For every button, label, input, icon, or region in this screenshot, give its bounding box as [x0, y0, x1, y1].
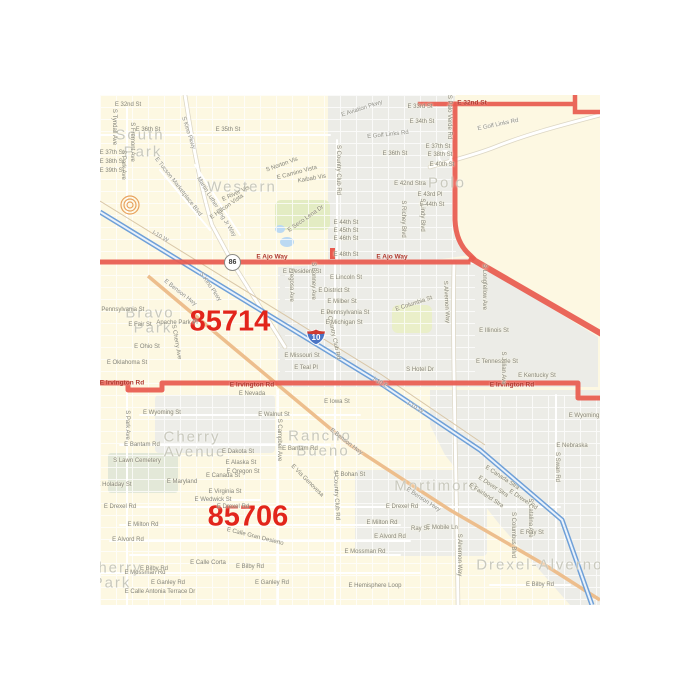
area-label: Cherry: [100, 560, 143, 577]
street-label: E Wedwick St: [195, 497, 232, 503]
street-label: E Walnut St: [258, 412, 289, 418]
street-label: E Milton Rd: [127, 522, 158, 528]
street-label: E Ganley Rd: [255, 580, 289, 586]
street-label: E Kentucky St: [518, 373, 556, 379]
street-label: S Country Club Rd: [325, 310, 341, 360]
street-label: S Alvernon Way: [442, 281, 450, 324]
hwy-label: S Kino Pkwy: [180, 116, 196, 150]
street-label: E Ray St: [520, 530, 544, 536]
street-label: E Tennessee St: [476, 359, 518, 365]
street-label: E Bantam Rd: [124, 442, 160, 448]
hwy-label: E Aviation Pkwy: [341, 100, 383, 119]
street-label: E Seco Lena Dr: [287, 204, 325, 233]
street-label: E 45th St: [334, 228, 359, 234]
street-label: E Mossman Rd: [344, 549, 385, 555]
street-label: S Catalina Ave: [527, 498, 533, 537]
street-label: E Fairland Stra: [468, 483, 505, 510]
street-label: E 39th St: [100, 168, 124, 174]
street-label: S Lawn Cemetery: [113, 458, 161, 464]
street-label: E District St: [318, 288, 349, 294]
zip-code-map[interactable]: 86 10 8571485706SouthParkWesternPoloBrav…: [100, 95, 600, 605]
street-label: E Milton Rd: [366, 520, 397, 526]
street-label: E 36th St: [383, 151, 408, 157]
street-label: Apache Park Pl: [156, 320, 197, 326]
street-label: Fregosa Ave: [288, 268, 294, 302]
area-label: Park: [124, 144, 163, 161]
street-label: E 40th St: [430, 162, 455, 168]
hwy-label: I-10 E: [372, 376, 389, 389]
road-label: E Irvington Rd: [100, 380, 144, 387]
street-label: E Columbia St: [395, 295, 433, 313]
street-label: S Richey Blvd: [400, 200, 406, 237]
street-label: E Oklahoma St: [107, 360, 147, 366]
street-label: S Tyndall Ave: [111, 109, 117, 145]
street-label: E 46th St: [334, 236, 359, 242]
street-label: E Teal Pl: [294, 365, 318, 371]
street-label: E Alvord Rd: [112, 537, 144, 543]
area-label: Bravo: [125, 305, 174, 322]
road-label: E Irvington Rd: [490, 382, 534, 389]
street-label: S Alvernon Way: [456, 534, 462, 576]
street-label: E Illinois St: [479, 328, 509, 334]
street-label: S Park Ave: [120, 150, 126, 180]
street-label: E Ganley Rd: [151, 580, 185, 586]
street-label: S Cherry Ave: [170, 324, 182, 360]
street-label: E 32nd St: [115, 102, 141, 108]
street-label: E Milber St: [327, 299, 356, 305]
hwy-label: I-10 W: [151, 230, 169, 244]
street-label: E Pennsylvania St: [100, 307, 144, 313]
street-label: E Missouri St: [284, 353, 319, 359]
street-label: S Campbell Ave: [276, 419, 282, 462]
street-label: E Wyoming: [569, 413, 600, 419]
street-label: E 34th St: [410, 119, 435, 125]
street-label: E Mossman Rd: [124, 570, 165, 576]
street-label: E 37th St: [100, 150, 124, 156]
street-label: E President St: [283, 269, 321, 275]
area-label: Avenue: [164, 444, 227, 461]
street-label: E Hemisphere Loop: [348, 583, 401, 589]
area-label: Western: [207, 179, 277, 196]
street-label: E Drexel Rd: [217, 504, 249, 510]
street-label: S Swan Rd: [554, 452, 560, 482]
hwy-label: S Kino Pkwy: [198, 271, 222, 302]
area-label: Polo: [428, 175, 466, 192]
road-label: E Irvington Rd: [230, 382, 274, 389]
street-label: S Fremont Ave: [129, 122, 135, 162]
area-label: Bueno: [296, 443, 349, 460]
street-label: S Park Ave: [124, 410, 130, 440]
zip-label: 85714: [190, 306, 271, 339]
street-label: E Holaday St: [100, 482, 132, 488]
street-label: E Pennsylvania St: [321, 310, 370, 316]
street-label: E Nevada: [239, 391, 265, 397]
street-label: E Camino Vista: [276, 165, 317, 181]
area-label: Drexel-Alvernon: [476, 557, 600, 574]
hwy-label: E Golf Links Rd: [367, 130, 409, 140]
road-label: E 32nd St: [457, 100, 487, 107]
street-label: E 44th St: [420, 202, 445, 208]
street-label: S Hotel Dr: [406, 367, 434, 373]
area-label: Rancho: [288, 428, 352, 445]
street-label: S Country Club Rd: [335, 145, 341, 195]
street-label: E Virginia St: [209, 489, 242, 495]
street-label: E 35th St: [216, 127, 241, 133]
street-label: S Country Club Rd: [332, 470, 341, 520]
street-label: E Alvord Rd: [374, 534, 406, 540]
hwy-label: E Benson Hwy: [329, 428, 364, 457]
street-label: S Bonney Ave: [310, 262, 316, 300]
street-label: E Drexel Rd: [508, 489, 538, 512]
street-label: E Nebraska: [556, 443, 587, 449]
street-label: E 33rd St: [407, 104, 432, 110]
area-label: Park: [100, 575, 131, 592]
road-label: E Ajo Way: [256, 254, 287, 261]
street-label: E 37th St: [426, 144, 451, 150]
street-label: E Dover Stra: [477, 475, 509, 499]
street-label: E Calle Corta: [190, 560, 226, 566]
street-label: E Calle Gran Desierto: [226, 527, 284, 547]
hwy-label: Martin Luther King Jr Way: [195, 176, 237, 238]
street-label: E Bohan St: [335, 472, 365, 478]
hwy-label: E Tucson Marketplace Blvd: [153, 157, 202, 218]
street-label: E 43rd Pl: [418, 192, 443, 198]
road-label: E Ajo Way: [376, 254, 407, 261]
street-label: E Halcon Vista: [209, 193, 245, 220]
street-label: E Michigan St: [325, 320, 362, 326]
hwy-label: E Golf Links Rd: [477, 118, 519, 133]
street-label: E Canada Stra: [484, 465, 520, 491]
street-label: E Alaska St: [226, 460, 257, 466]
map-label-layer: 8571485706SouthParkWesternPoloBravoParkC…: [100, 95, 600, 605]
street-label: E 38th St: [428, 152, 453, 158]
area-label: Cherry: [163, 429, 220, 446]
street-label: E Bilby Rd: [526, 582, 554, 588]
street-label: E Lincoln St: [330, 275, 362, 281]
street-label: E Ohio St: [134, 344, 160, 350]
street-label: E River Vis: [221, 185, 250, 203]
street-label: Kaibab Vis: [297, 174, 326, 185]
street-label: E Mobile Ln: [426, 525, 458, 531]
street-label: E 38th St: [100, 159, 124, 165]
street-label: S Julian Ave: [500, 352, 506, 385]
hwy-label: E Benson Hwy: [405, 487, 441, 513]
street-label: E Drexel Rd: [386, 504, 418, 510]
street-label: E Fair St: [128, 322, 151, 328]
street-label: S Longfellow Ave: [481, 264, 487, 310]
street-label: E 44th St: [334, 220, 359, 226]
street-label: E Dakota St: [222, 449, 254, 455]
street-label: S Norton Vis: [265, 156, 299, 173]
street-label: S Columbus Blvd: [510, 512, 516, 558]
street-label: E 48th St: [334, 252, 359, 258]
street-label: E Bilby Rd: [140, 566, 168, 572]
street-label: E Wyoming St: [143, 410, 181, 416]
street-label: E Bantam Rd: [282, 446, 318, 452]
street-label: E 36th St: [136, 127, 161, 133]
area-label: South: [115, 127, 164, 144]
street-label: E Calle Antonia Terrace Dr: [125, 589, 196, 595]
street-label: E Canada St: [206, 473, 240, 479]
street-label: E Via Genovesa: [290, 464, 325, 499]
street-label: S Lindy Blvd: [419, 198, 425, 231]
street-label: E Iowa St: [324, 399, 350, 405]
street-label: E 42nd Stra: [394, 181, 426, 187]
street-label: E Bilby Rd: [236, 564, 264, 570]
zip-label: 85706: [208, 501, 289, 534]
street-label: E Maryland: [167, 479, 197, 485]
street-label: Ray St: [411, 526, 429, 532]
area-label: Mortimore: [394, 478, 480, 495]
street-label: S Palo Verde Rd: [446, 95, 452, 139]
street-label: E Drexel Rd: [104, 504, 136, 510]
hwy-label: E Benson Hwy: [163, 279, 198, 308]
street-label: E Oregon St: [226, 469, 259, 475]
area-label: Park: [134, 320, 173, 337]
hwy-label: I-10 W: [406, 401, 424, 415]
